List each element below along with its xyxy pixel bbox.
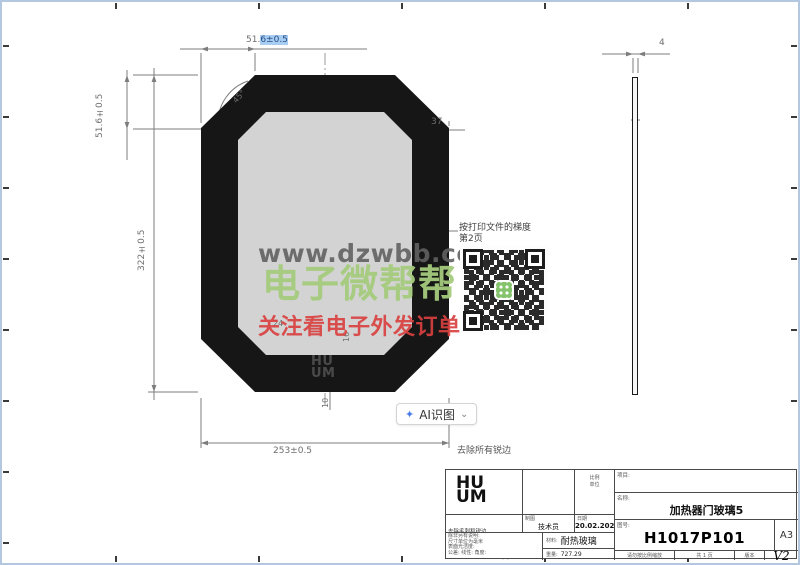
title-block-project-cell: 项目: — [615, 470, 798, 493]
title-block-size-cell: A3 — [775, 520, 798, 551]
date-label: 日期 — [575, 515, 614, 522]
title-block-tolerance-cell: 除非另有说明: 尺寸单位为毫米 表面光洁度: 公差: 线性: 角度: ISO 2… — [446, 533, 543, 560]
title-block-deburr-cell: 去除毛刺和锐边 — [446, 515, 523, 533]
title-block-sheet-cell: 共 1 页 — [675, 551, 735, 560]
ai-button-label: AI识图 — [419, 406, 455, 423]
dwg-no: H1017P101 — [615, 529, 774, 547]
dim-top-chamfer: 51.6±0.5 — [246, 35, 288, 45]
sheet-zone-ticks-top — [0, 3, 800, 9]
dim-thickness: 4 — [659, 38, 665, 48]
dim-height: 322±0.5 — [137, 205, 147, 271]
revision-value: V2 — [765, 551, 798, 560]
dim-top-chamfer-prefix: 51. — [246, 35, 260, 45]
qr-center-logo-icon — [494, 280, 514, 300]
title-block-revision-cell: V2 — [765, 551, 798, 560]
dwg-no-label: 图号: — [617, 521, 630, 529]
huum-logo-line2: UM — [456, 490, 522, 504]
title-block-dwgno-cell: 图号: H1017P101 — [615, 520, 775, 551]
watermark-brand: 电子微帮帮 — [262, 263, 457, 305]
front-view-glass-frame: HU UM — [201, 75, 449, 392]
material-label: 材料: — [546, 537, 558, 544]
dim-logo-offset: 10 — [321, 386, 330, 408]
dim-left-chamfer: 51.6±0.5 — [95, 76, 105, 138]
unit-label: 单位 — [575, 481, 614, 488]
paper-size: A3 — [775, 520, 798, 550]
noscale-note: 请勿按比例缩放 — [615, 551, 674, 560]
tolerance-standard: ISO 2768中级 — [448, 557, 540, 560]
part-name: 加热器门玻璃5 — [615, 502, 798, 518]
scale-label: 比例 — [575, 474, 614, 481]
huum-logo: HU UM — [446, 470, 522, 504]
qr-code — [460, 246, 548, 334]
title-block-weight-cell: 重量: 727.29 — [543, 549, 615, 560]
edge-note: 去除所有锐边 — [457, 446, 511, 457]
dim-top-chamfer-selected-text: 6±0.5 — [260, 35, 288, 45]
dim-width: 253±0.5 — [273, 446, 312, 456]
tolerance-line4: 公差: 线性: 角度: — [448, 551, 540, 557]
drawing-sheet: HU UM 51.6±0.5 51.6±0.5 322±0.5 45° 37 2… — [0, 0, 800, 565]
title-block: HU UM 比例 单位 项目: 名称: 加热器门玻璃5 去除毛刺和锐边 制图 技… — [445, 469, 797, 559]
title-block-scale-cell: 比例 单位 — [575, 470, 615, 515]
date-value: 20.02.2024 — [575, 522, 614, 530]
title-block-drawn-cell: 制图 技术员 — [523, 515, 575, 533]
side-view-glass — [632, 77, 638, 395]
sheet-info: 共 1 页 — [675, 551, 734, 560]
title-block-material-cell: 材料: 耐热玻璃 — [543, 533, 615, 549]
title-block-name-cell: 名称: 加热器门玻璃5 — [615, 493, 798, 520]
weight-value: 727.29 — [561, 551, 582, 558]
dim-border-width: 37 — [431, 117, 442, 127]
material-value: 耐热玻璃 — [561, 534, 597, 547]
sheet-zone-ticks-left — [3, 0, 9, 565]
title-block-revlabel-cell: 版本 — [735, 551, 765, 560]
chevron-down-icon: ⌄ — [460, 409, 468, 420]
name-label: 名称: — [617, 494, 630, 502]
qr-finder-top-left — [463, 249, 483, 269]
drawn-label: 制图 — [523, 515, 574, 522]
qr-finder-top-right — [525, 249, 545, 269]
title-block-noscale-cell: 请勿按比例缩放 — [615, 551, 675, 560]
emboss-line2: UM — [311, 368, 336, 380]
title-block-date-cell: 日期 20.02.2024 — [575, 515, 615, 533]
embossed-huum-logo: HU UM — [311, 356, 336, 380]
ai-sparkle-icon: ✦ — [405, 408, 414, 421]
qr-finder-bottom-left — [463, 311, 483, 331]
title-block-logo-cell: HU UM — [446, 470, 523, 515]
watermark-slogan: 关注看电子外发订单 — [258, 309, 461, 341]
drawn-value: 技术员 — [523, 522, 574, 532]
ai-recognize-button[interactable]: ✦ AI识图 ⌄ — [396, 403, 477, 425]
title-block-empty-cell — [523, 470, 575, 515]
rev-label: 版本 — [735, 551, 764, 560]
print-note-line1: 按打印文件的梯度 — [459, 223, 531, 234]
weight-label: 重量: — [546, 551, 558, 558]
project-label: 项目: — [617, 471, 630, 479]
